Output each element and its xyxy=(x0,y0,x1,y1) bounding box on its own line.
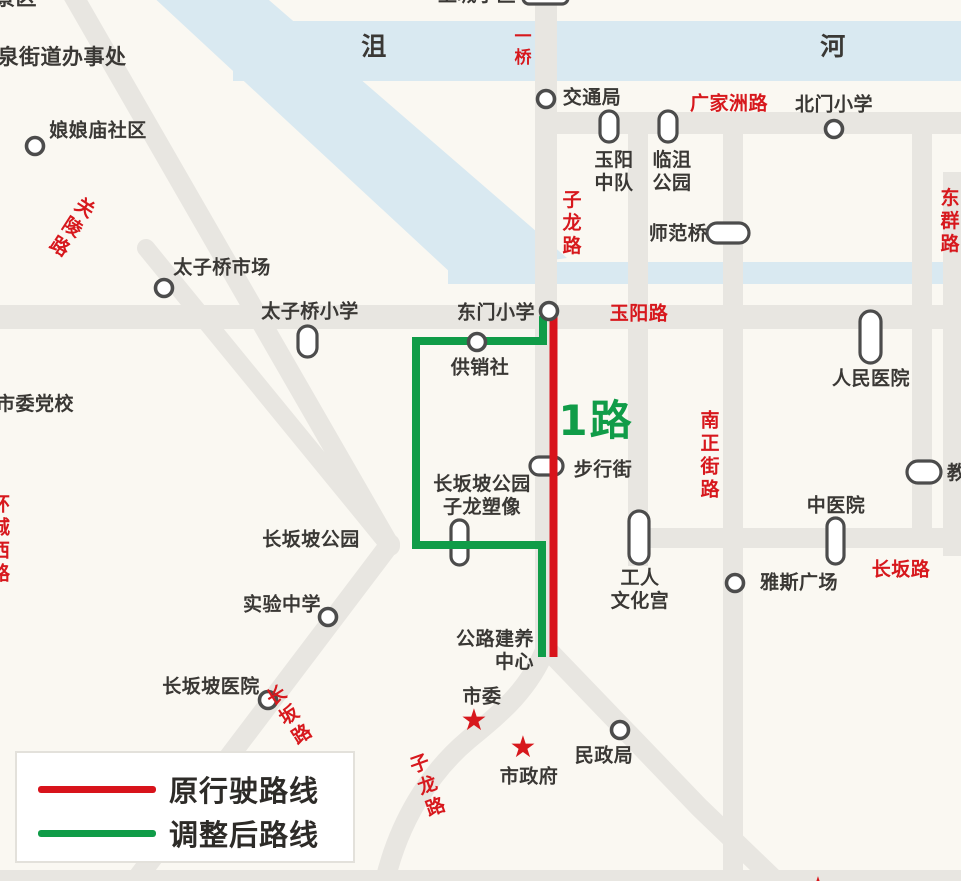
jiao-stop-marker xyxy=(907,461,941,483)
beimen-school-label: 北门小学 xyxy=(795,94,873,117)
legend-original-row: 原行驶路线 xyxy=(17,769,353,809)
river-name-he: 河 xyxy=(820,32,846,62)
yuquan-office-label: 玉泉街道办事处 xyxy=(0,45,127,70)
taiziqiao-market-label: 太子桥市场 xyxy=(173,257,271,280)
gonglu-center-label: 公路建养 中心 xyxy=(449,628,534,674)
jiao-partial-label: 教 xyxy=(947,462,961,485)
guangjiazhou-road-label: 广家洲路 xyxy=(690,93,768,116)
changbanpo-hospital-label: 长坂坡医院 xyxy=(162,676,260,699)
shifan-bridge-label: 师范桥 xyxy=(649,223,708,246)
jiaotongju-label: 交通局 xyxy=(563,87,622,110)
renmin-hospital-label: 人民医院 xyxy=(832,368,910,391)
changbanpo-statue-label: 长坂坡公园 子龙塑像 xyxy=(433,473,531,519)
buxingjie-stop-marker xyxy=(530,457,563,475)
taiziqiao-market-marker xyxy=(156,280,173,297)
dongmen-school-label: 东门小学 xyxy=(457,302,535,325)
changban-road-right-label: 长坂路 xyxy=(872,559,931,582)
legend-red-line-sample xyxy=(38,786,156,793)
shiyan-school-label: 实验中学 xyxy=(243,594,321,617)
shiwei-dangxiao-label: 市委党校 xyxy=(0,393,74,416)
road-mid-diagonal xyxy=(146,248,388,544)
gongren-wenhuagong-label: 工人 文化宫 xyxy=(611,567,670,613)
dongmen-school-marker xyxy=(541,303,558,320)
taiziqiao-school-label: 太子桥小学 xyxy=(261,301,359,324)
legend-adjusted-label: 调整后路线 xyxy=(169,812,319,854)
shangcheng-label: 上城小区 xyxy=(438,0,516,7)
nanzhengjie-road-label: 南正街路 xyxy=(699,410,718,502)
scenic-area-label: 景区 xyxy=(0,0,37,11)
yiqiao-bridge-label: 一桥 xyxy=(512,27,529,69)
gongren-wenhuagong-stop-marker xyxy=(629,511,649,564)
minzhengju-label: 民政局 xyxy=(575,745,634,768)
shizhengfu-star-icon: ★ xyxy=(510,733,537,763)
shiwei-star-icon: ★ xyxy=(461,706,488,736)
niangniangmiao-label: 娘娘庙社区 xyxy=(49,120,147,143)
jiaotongju-marker xyxy=(538,91,555,108)
route-1-badge: 1路 xyxy=(558,396,633,446)
linju-park-label: 临沮 公园 xyxy=(652,149,691,195)
minzhengju-marker xyxy=(612,722,629,739)
legend-green-line-sample xyxy=(38,830,156,837)
shangcheng-stop-marker xyxy=(523,0,568,4)
bus-route-map: 景区 玉泉街道办事处 沮 河 一桥 上城小区 娘娘庙社区 关陵路 太子桥市场 太… xyxy=(0,0,961,881)
niangniangmiao-marker xyxy=(27,138,44,155)
yuyang-zhongdui-label: 玉阳 中队 xyxy=(594,149,633,195)
changbanpo-park-label: 长坂坡公园 xyxy=(262,529,360,552)
linju-park-stop-marker xyxy=(659,111,677,142)
shifan-bridge-marker xyxy=(707,223,749,243)
yuyang-zhongdui-stop-marker xyxy=(600,111,618,142)
legend-original-label: 原行驶路线 xyxy=(169,768,319,810)
zhongyiyuan-label: 中医院 xyxy=(807,495,866,518)
dongqun-road-label: 东群路 xyxy=(939,188,958,257)
renmin-hospital-stop-marker xyxy=(860,311,881,363)
gongxiaoshe-marker xyxy=(469,334,486,351)
beimen-school-marker xyxy=(826,121,843,138)
yuyang-road-label: 玉阳路 xyxy=(610,303,669,326)
gongxiaoshe-label: 供销社 xyxy=(451,357,510,380)
shizhengfu-label: 市政府 xyxy=(500,766,559,789)
yasi-square-marker xyxy=(727,575,744,592)
river-name-ju: 沮 xyxy=(361,32,387,62)
river-lower-band xyxy=(448,262,961,284)
yasi-square-label: 雅斯广场 xyxy=(760,572,838,595)
zhongyiyuan-stop-marker xyxy=(827,518,844,564)
buxingjie-label: 步行街 xyxy=(574,459,633,482)
huanchengxi-road-label: 环城西路 xyxy=(0,494,8,586)
shiyan-school-marker xyxy=(320,609,337,626)
zilong-road-top-label: 子龙路 xyxy=(561,190,580,259)
legend-adjusted-row: 调整后路线 xyxy=(17,813,353,853)
taiziqiao-school-stop-marker xyxy=(298,326,317,357)
legend-box: 原行驶路线 调整后路线 xyxy=(15,751,355,863)
partial-star-icon: ★ xyxy=(808,875,828,881)
